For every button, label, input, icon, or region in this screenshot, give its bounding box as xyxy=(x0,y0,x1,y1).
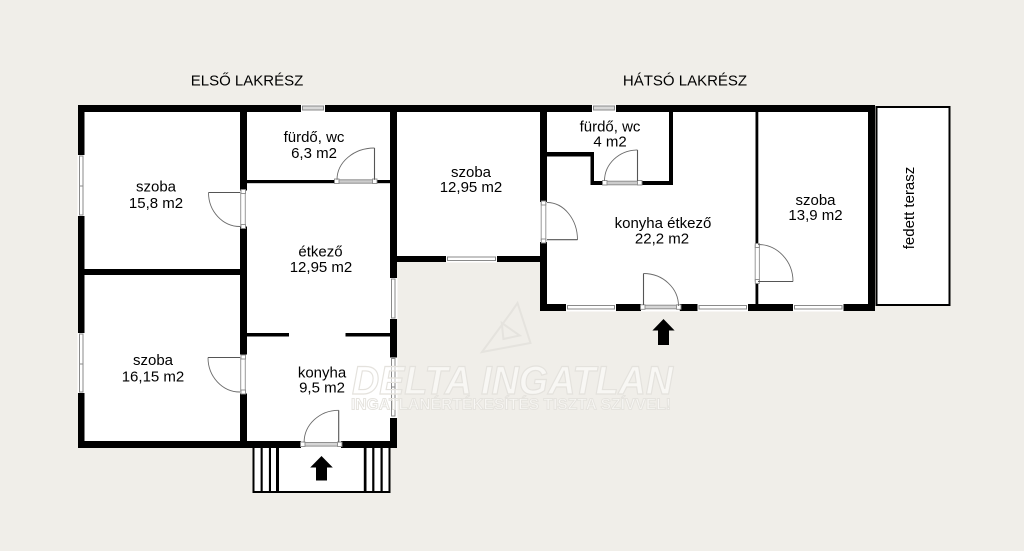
svg-text:15,8 m2: 15,8 m2 xyxy=(129,195,183,212)
svg-text:22,2 m2: 22,2 m2 xyxy=(635,231,689,248)
svg-text:szoba: szoba xyxy=(133,352,174,369)
svg-text:9,5 m2: 9,5 m2 xyxy=(299,380,345,397)
svg-text:16,15 m2: 16,15 m2 xyxy=(122,369,185,386)
svg-text:12,95 m2: 12,95 m2 xyxy=(440,179,503,196)
svg-text:konyha étkező: konyha étkező xyxy=(615,215,712,232)
svg-text:étkező: étkező xyxy=(298,244,342,261)
svg-text:ELSŐ LAKRÉSZ: ELSŐ LAKRÉSZ xyxy=(191,73,304,90)
svg-text:fürdő, wc: fürdő, wc xyxy=(284,129,345,146)
svg-text:4 m2: 4 m2 xyxy=(593,134,626,151)
svg-text:12,95 m2: 12,95 m2 xyxy=(290,259,353,276)
svg-text:fedett terasz: fedett terasz xyxy=(901,167,918,250)
svg-text:szoba: szoba xyxy=(136,179,177,196)
svg-text:6,3 m2: 6,3 m2 xyxy=(291,145,337,162)
svg-text:HÁTSÓ LAKRÉSZ: HÁTSÓ LAKRÉSZ xyxy=(623,73,747,90)
svg-text:13,9 m2: 13,9 m2 xyxy=(788,207,842,224)
svg-text:INGATLANÉRTÉKESÍTÉS TISZTA SZÍ: INGATLANÉRTÉKESÍTÉS TISZTA SZÍVVEL! xyxy=(351,395,671,414)
